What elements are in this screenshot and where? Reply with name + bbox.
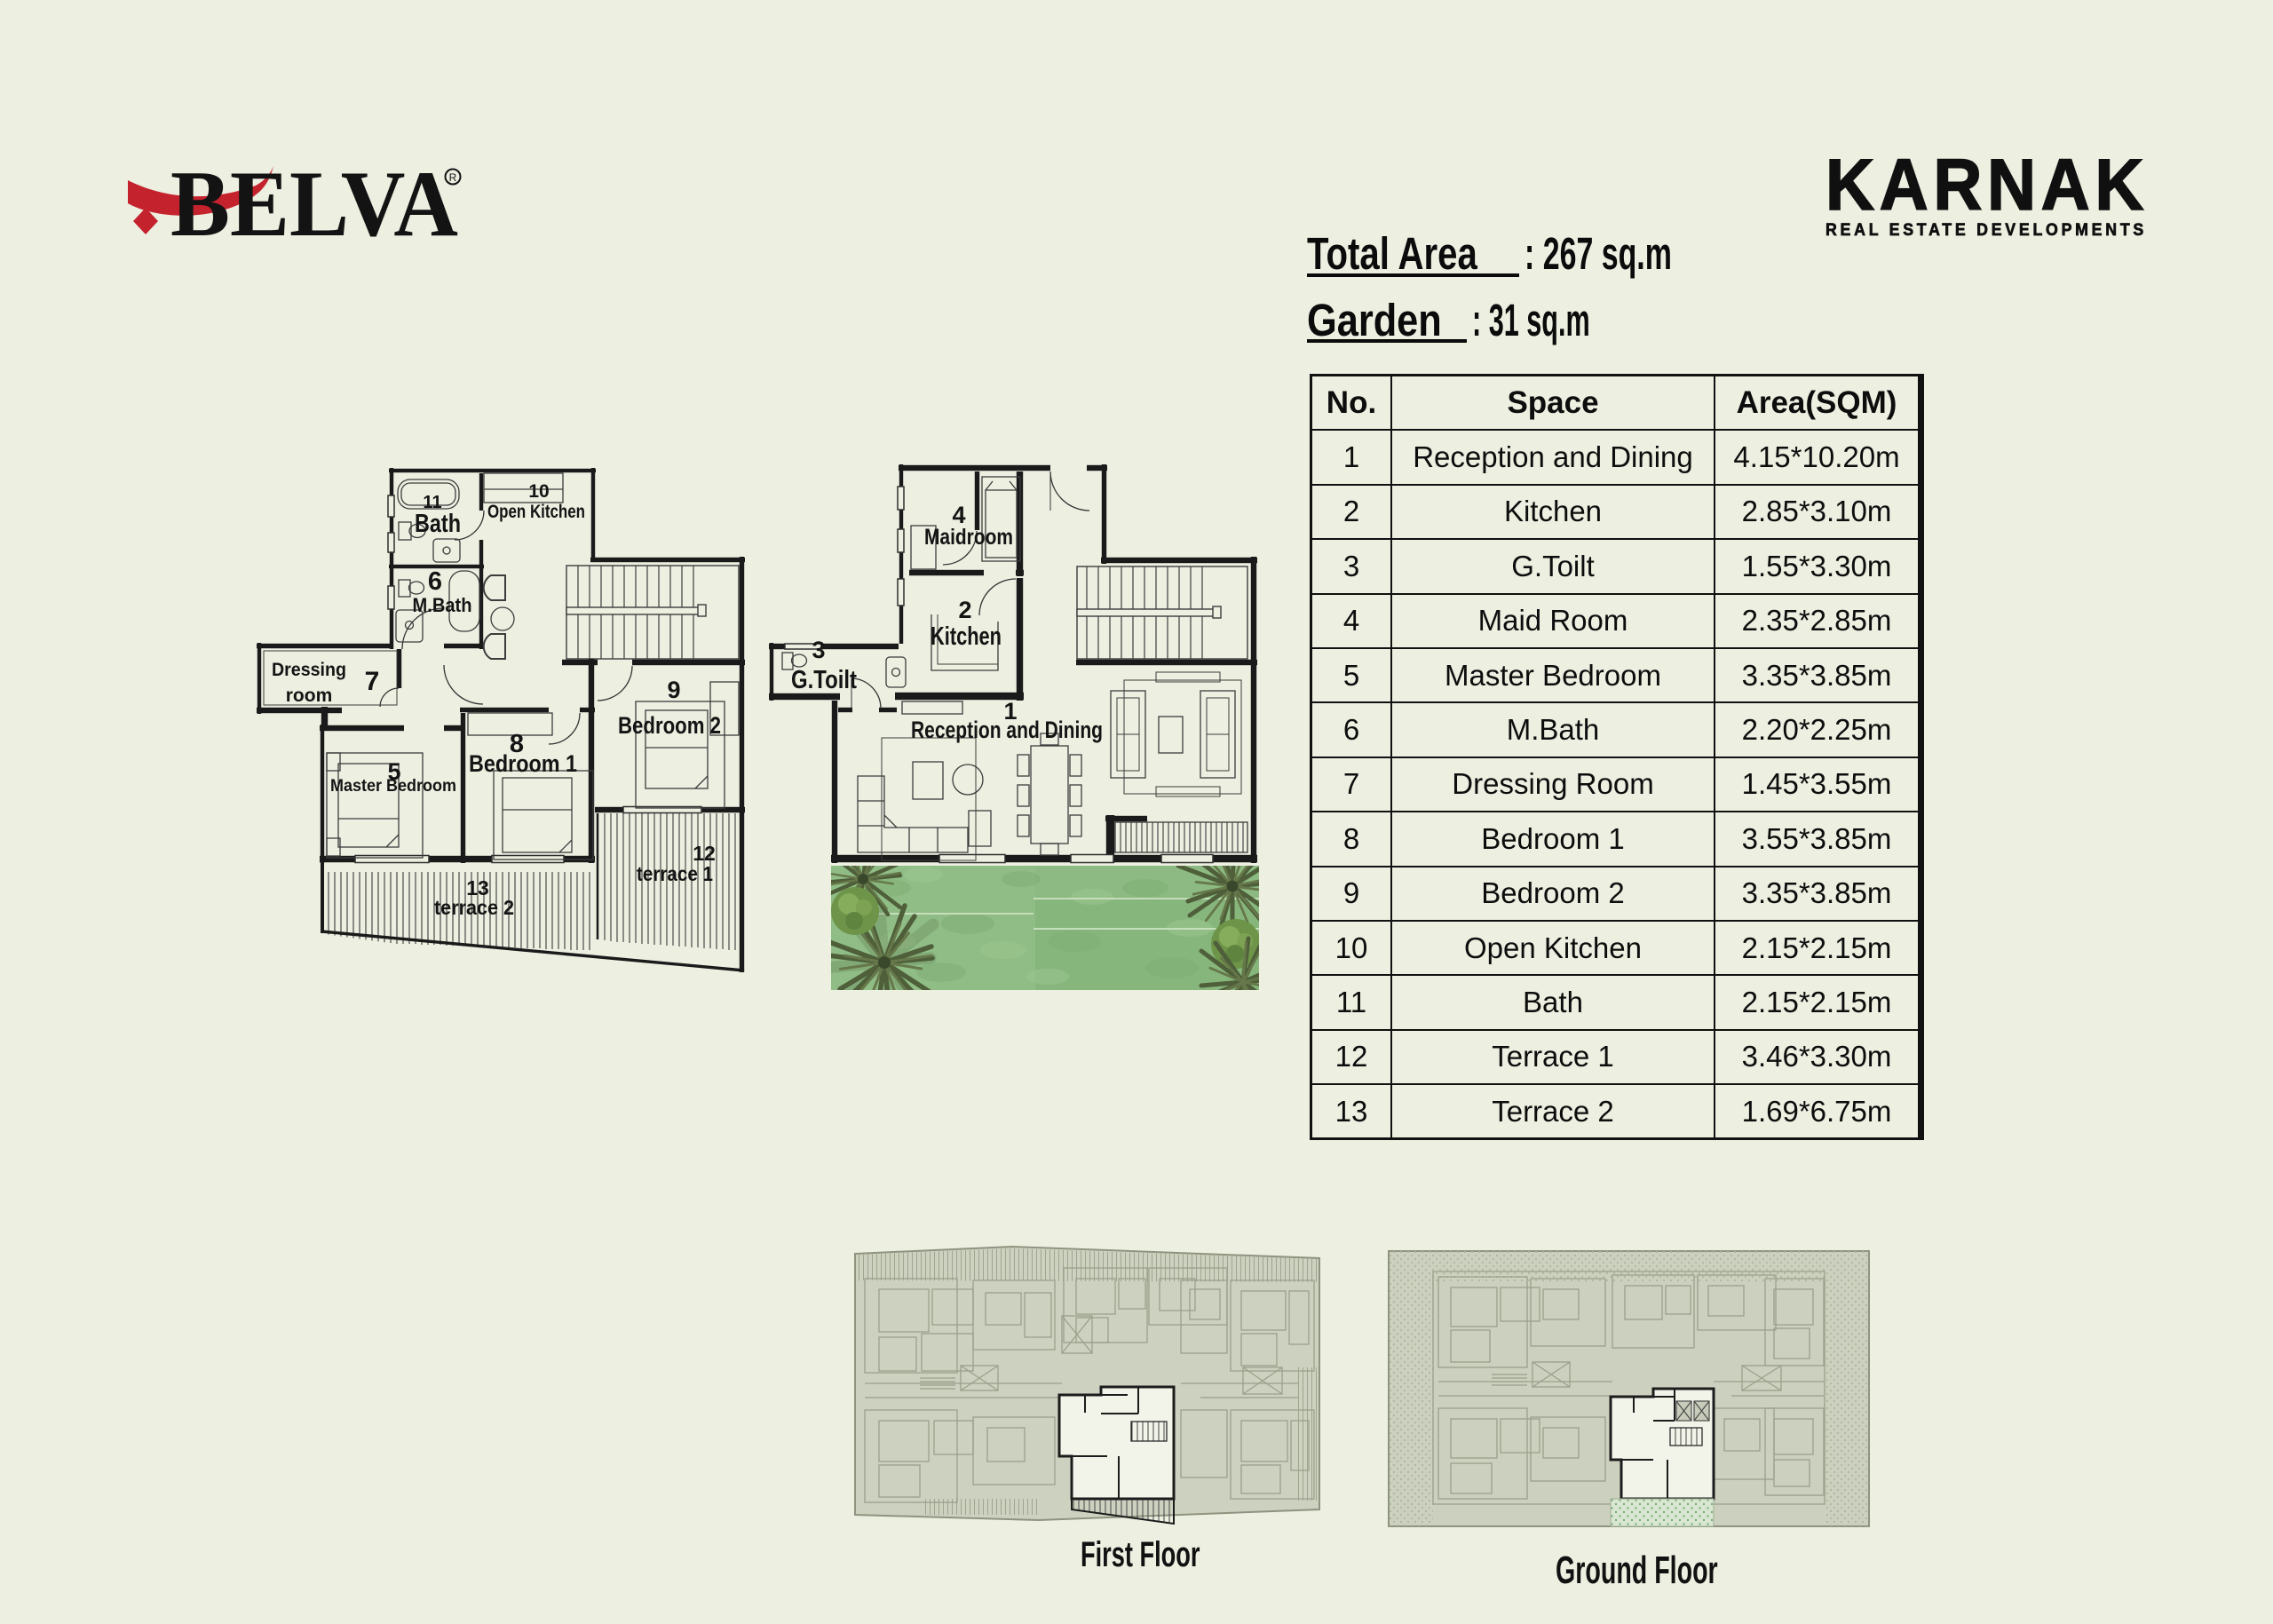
svg-text:Open Kitchen: Open Kitchen	[487, 502, 585, 522]
svg-text:terrace 1: terrace 1	[637, 862, 713, 885]
svg-text:R: R	[449, 171, 457, 184]
svg-text:REAL ESTATE DEVELOPMENTS: REAL ESTATE DEVELOPMENTS	[1826, 221, 2147, 240]
svg-text:KARNAK: KARNAK	[1826, 151, 2149, 226]
svg-text:Master Bedroom: Master Bedroom	[330, 777, 456, 796]
svg-text:6: 6	[428, 567, 442, 596]
svg-text:M.Bath: M.Bath	[413, 594, 472, 616]
svg-text:G.Toilt: G.Toilt	[791, 666, 857, 694]
svg-text:Maidroom: Maidroom	[924, 525, 1013, 550]
svg-text:3: 3	[812, 637, 825, 663]
svg-text:Bath: Bath	[415, 510, 461, 538]
svg-text:7: 7	[365, 667, 380, 696]
svg-text:BELVA: BELVA	[170, 152, 458, 253]
svg-text:Kitchen: Kitchen	[931, 622, 1002, 651]
svg-text:10: 10	[528, 481, 549, 502]
svg-text:Dressing: Dressing	[272, 660, 346, 680]
svg-text:Bedroom 2: Bedroom 2	[618, 712, 721, 739]
svg-text:9: 9	[667, 677, 680, 703]
svg-text:Bedroom 1: Bedroom 1	[469, 750, 577, 777]
svg-text:Reception and Dining: Reception and Dining	[911, 717, 1103, 743]
svg-text:room: room	[286, 685, 333, 706]
svg-text:2: 2	[958, 597, 971, 623]
svg-text:terrace 2: terrace 2	[434, 896, 514, 919]
